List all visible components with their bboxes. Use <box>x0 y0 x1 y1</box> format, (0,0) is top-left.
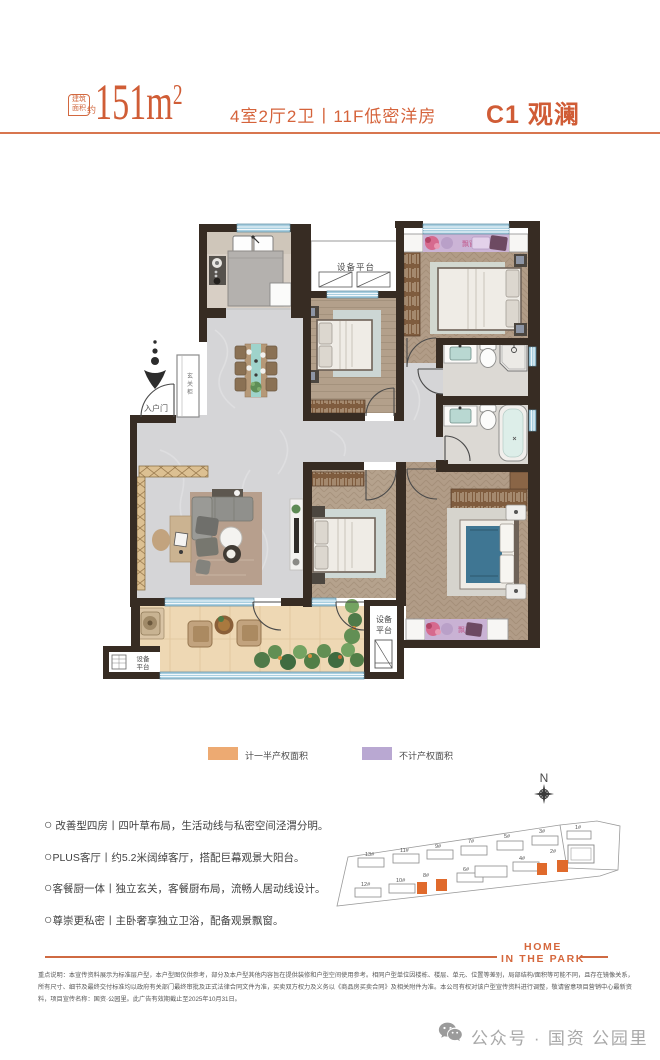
svg-text:12#: 12# <box>361 882 371 888</box>
svg-text:设备: 设备 <box>137 654 151 663</box>
svg-text:平台: 平台 <box>376 625 392 635</box>
svg-text:8#: 8# <box>423 873 430 879</box>
svg-text:入户门: 入户门 <box>144 403 168 413</box>
svg-text:6#: 6# <box>463 867 470 873</box>
svg-text:11#: 11# <box>400 848 410 854</box>
svg-text:4#: 4# <box>519 856 526 862</box>
svg-text:2#: 2# <box>550 849 557 855</box>
svg-text:13#: 13# <box>365 852 375 858</box>
svg-text:N: N <box>540 771 549 785</box>
svg-text:5#: 5# <box>504 834 511 840</box>
svg-text:设备平台: 设备平台 <box>337 262 375 272</box>
svg-text:玄: 玄 <box>187 372 193 380</box>
svg-text:柜: 柜 <box>187 388 193 396</box>
svg-text:1#: 1# <box>575 825 582 831</box>
svg-text:7#: 7# <box>468 839 475 845</box>
svg-text:平台: 平台 <box>137 662 150 671</box>
svg-text:9#: 9# <box>435 844 442 850</box>
svg-text:设备: 设备 <box>376 614 392 624</box>
svg-text:10#: 10# <box>396 878 406 884</box>
svg-text:3#: 3# <box>539 829 546 835</box>
svg-text:关: 关 <box>187 380 193 388</box>
